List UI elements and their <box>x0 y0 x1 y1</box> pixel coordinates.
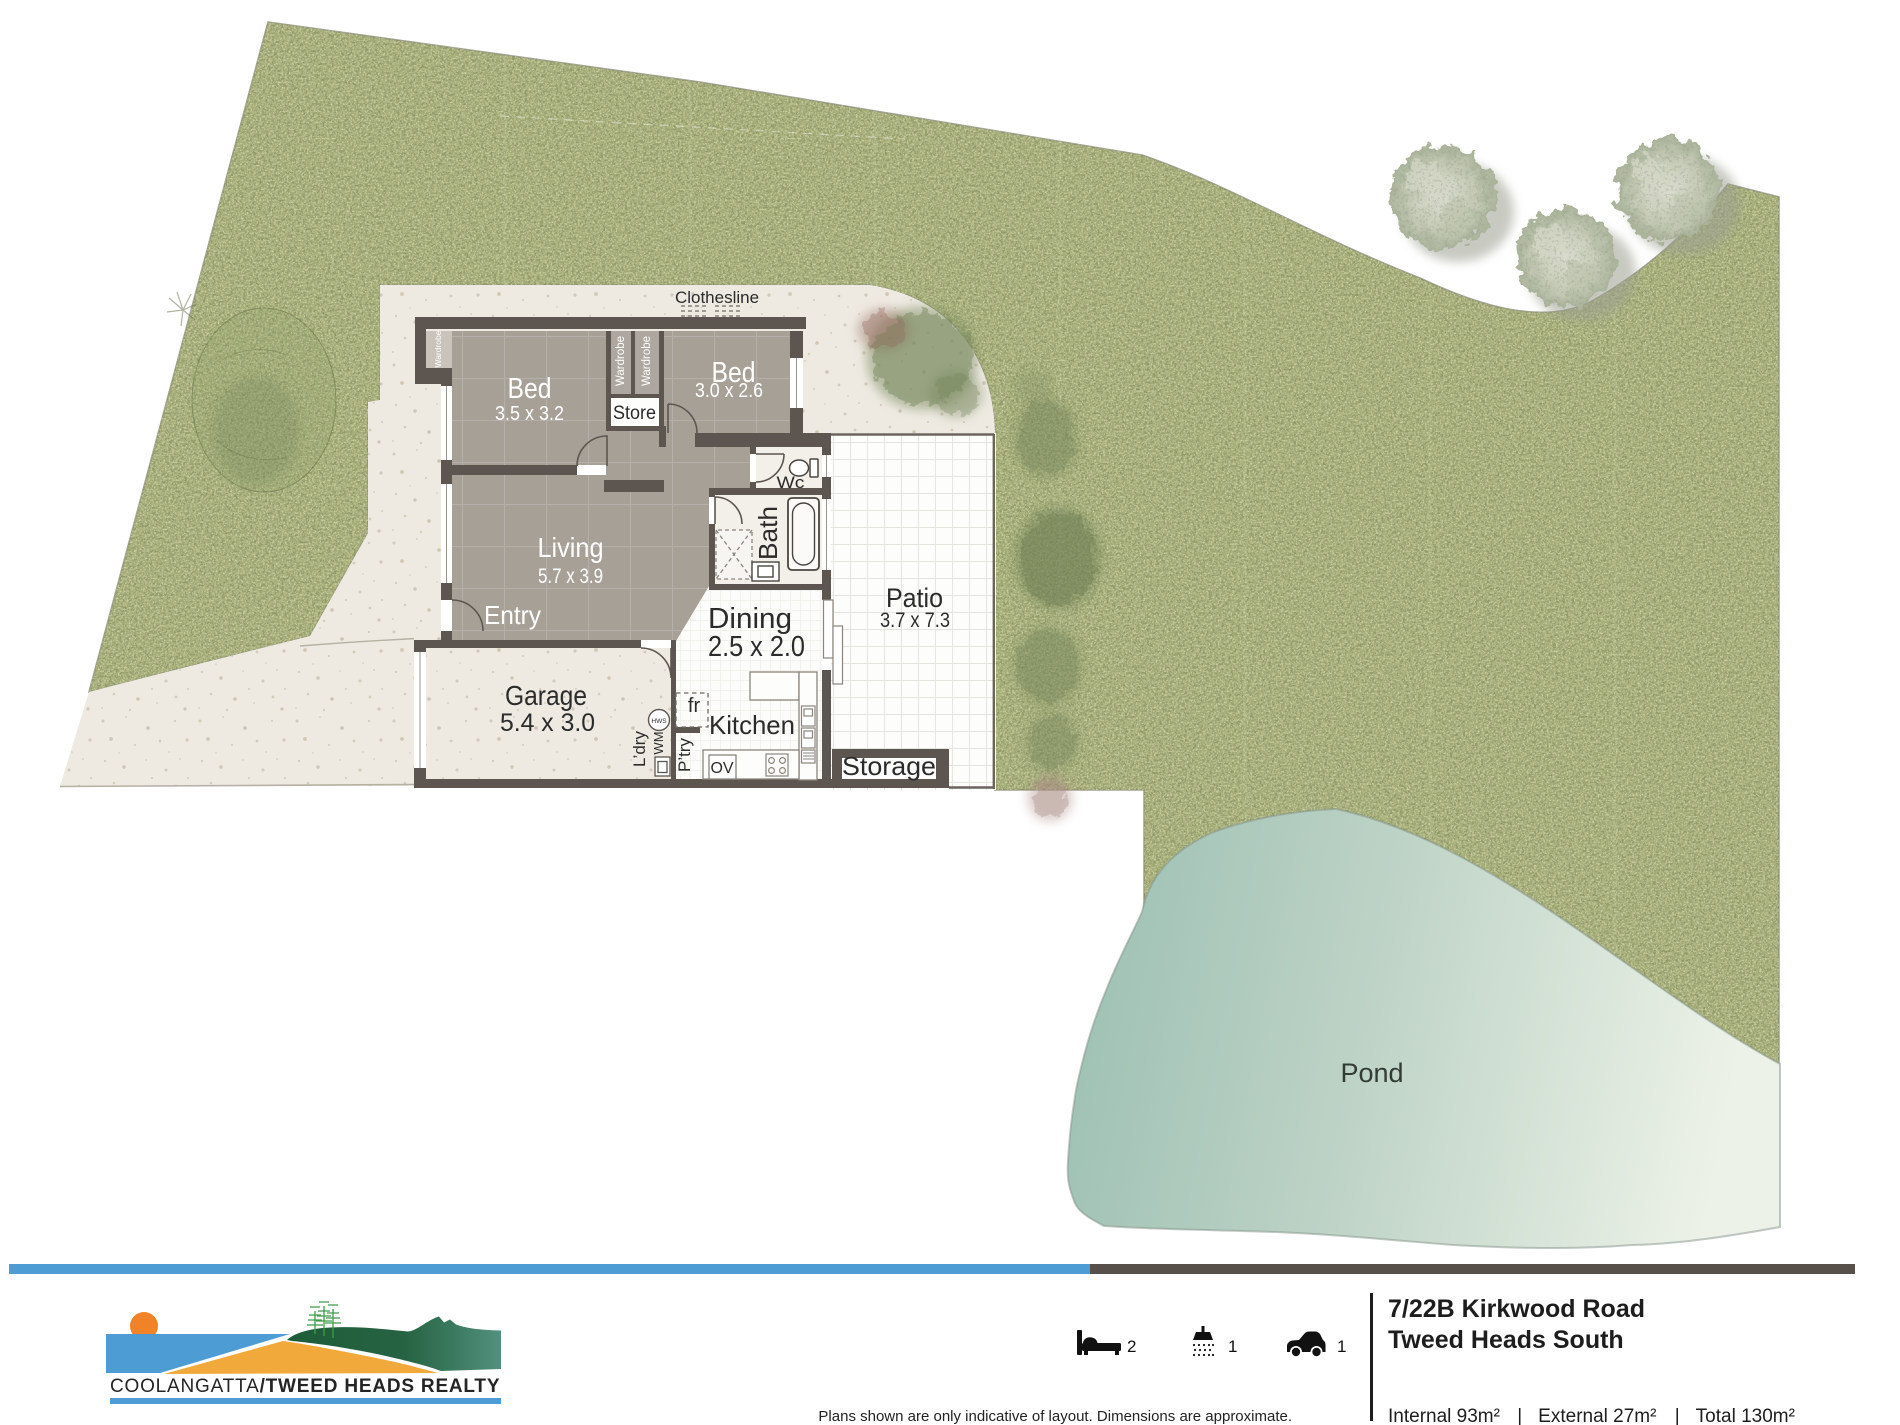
svg-text:1: 1 <box>1337 1337 1346 1356</box>
svg-text:Bed: Bed <box>508 373 552 405</box>
svg-text:Storage: Storage <box>842 751 936 781</box>
svg-text:Clothesline: Clothesline <box>675 288 759 307</box>
svg-text:Entry: Entry <box>484 600 541 630</box>
svg-text:2: 2 <box>1127 1337 1136 1356</box>
svg-text:Wardrobe: Wardrobe <box>433 330 443 367</box>
svg-text:Plans shown are only indicativ: Plans shown are only indicative of layou… <box>818 1408 1292 1425</box>
svg-text:2.5 x 2.0: 2.5 x 2.0 <box>708 631 805 663</box>
svg-text:5.4 x 3.0: 5.4 x 3.0 <box>500 709 595 737</box>
svg-text:L’dry: L’dry <box>630 731 649 767</box>
svg-text:HWS: HWS <box>651 718 667 725</box>
svg-text:Garage: Garage <box>505 680 587 711</box>
svg-text:3.7 x 7.3: 3.7 x 7.3 <box>880 609 950 632</box>
svg-text:Tweed Heads South: Tweed Heads South <box>1388 1326 1624 1354</box>
svg-text:Kitchen: Kitchen <box>709 710 795 740</box>
svg-text:COOLANGATTA/TWEED HEADS REALTY: COOLANGATTA/TWEED HEADS REALTY <box>110 1376 500 1397</box>
svg-text:P’try: P’try <box>675 738 694 773</box>
svg-text:OV: OV <box>710 760 733 777</box>
svg-text:5.7 x 3.9: 5.7 x 3.9 <box>538 565 603 588</box>
svg-text:Store: Store <box>613 403 656 424</box>
svg-text:WM: WM <box>651 731 666 754</box>
svg-text:1: 1 <box>1228 1337 1237 1356</box>
svg-text:Internal 93m² |External 27m² |: Internal 93m² |External 27m² |Total 130m… <box>1388 1406 1795 1425</box>
svg-text:7/22B Kirkwood Road: 7/22B Kirkwood Road <box>1388 1295 1645 1323</box>
svg-text:fr: fr <box>688 695 701 717</box>
svg-text:3.5 x 3.2: 3.5 x 3.2 <box>495 403 564 425</box>
svg-text:Wardrobe: Wardrobe <box>615 336 627 386</box>
svg-text:Pond: Pond <box>1340 1058 1403 1088</box>
svg-text:Bath: Bath <box>753 506 783 560</box>
svg-text:Wc: Wc <box>777 473 806 492</box>
svg-text:3.0 x 2.6: 3.0 x 2.6 <box>695 380 763 402</box>
svg-text:Living: Living <box>538 532 604 563</box>
svg-text:Wardrobe: Wardrobe <box>641 336 653 386</box>
